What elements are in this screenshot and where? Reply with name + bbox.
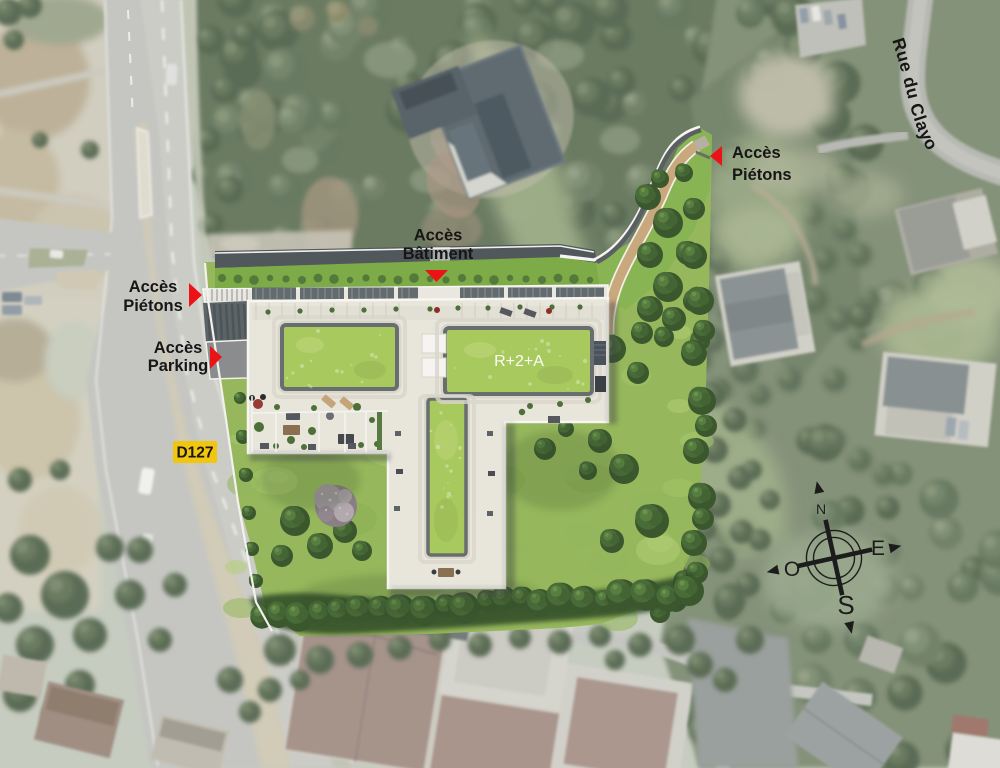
svg-text:Accès: Accès: [414, 227, 463, 245]
svg-text:S: S: [837, 590, 854, 620]
svg-text:D127: D127: [176, 445, 213, 462]
svg-text:Bâtiment: Bâtiment: [403, 245, 474, 263]
svg-text:E: E: [871, 537, 885, 560]
svg-text:Parking: Parking: [148, 357, 209, 375]
svg-text:Piétons: Piétons: [732, 166, 792, 184]
svg-text:Piétons: Piétons: [123, 297, 183, 315]
svg-text:N: N: [816, 501, 826, 517]
svg-text:R+2+A: R+2+A: [494, 353, 544, 370]
svg-text:O: O: [784, 558, 800, 581]
svg-text:Accès: Accès: [732, 144, 781, 162]
svg-text:Accès: Accès: [154, 339, 203, 357]
svg-text:Accès: Accès: [129, 278, 178, 296]
